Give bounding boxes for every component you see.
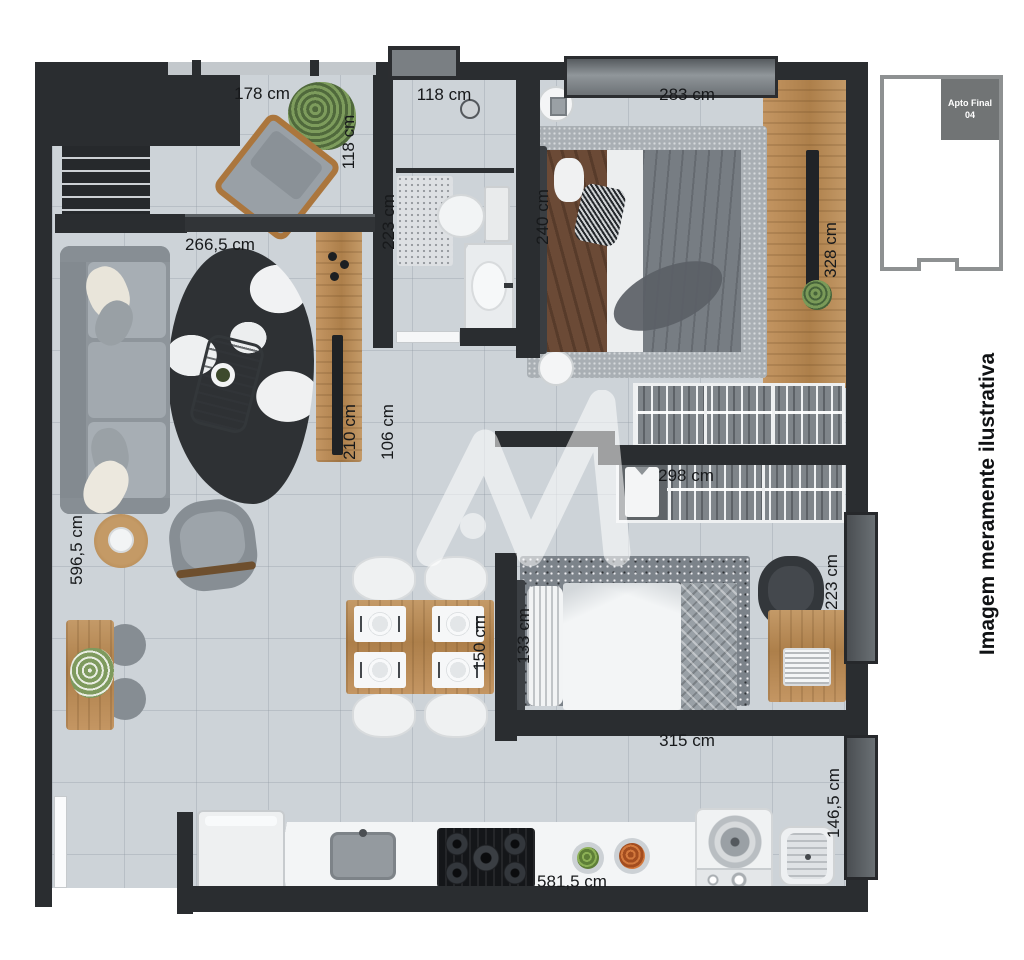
dim-living-width: 266,5 cm: [175, 235, 265, 255]
coffee-table-bowl: [211, 363, 235, 387]
dim-bedroom2-depth: 223 cm: [822, 537, 842, 627]
dim-bathroom-depth: 223 cm: [379, 177, 399, 267]
wall-entry: [55, 214, 187, 233]
dining-chair: [352, 692, 416, 738]
master-tv-panel: [806, 150, 819, 292]
dining-chair: [424, 692, 488, 738]
key-plan-notch: [917, 258, 959, 271]
service-window: [844, 735, 878, 880]
dim-dining-width: 150 cm: [470, 598, 490, 688]
place-setting: [354, 652, 406, 688]
key-plan: Apto Final 04: [880, 75, 1003, 271]
dim-master-closet: 328 cm: [821, 205, 841, 295]
washing-machine: [695, 808, 773, 892]
wall-left: [35, 62, 52, 907]
nightstand: [538, 350, 574, 386]
dim-bathroom-width: 118 cm: [399, 85, 489, 105]
decor-dot: [330, 272, 339, 281]
bedroom2-blanket: [681, 583, 737, 710]
bowl-green: [572, 842, 604, 874]
bedroom2-duvet: [563, 583, 681, 710]
m-logo-watermark-icon: [415, 390, 645, 570]
decor-dot: [340, 260, 349, 269]
dim-service-depth: 146,5 cm: [824, 758, 844, 848]
railing-post: [192, 60, 201, 76]
master-pillow: [554, 158, 584, 202]
dim-closet-width: 298 cm: [641, 466, 731, 486]
dim-kitchen-length: 581,5 cm: [527, 872, 617, 892]
shower-glass-partition: [396, 168, 514, 173]
dining-chair: [352, 556, 416, 602]
side-table: [94, 514, 148, 568]
refrigerator: [197, 810, 285, 896]
key-plan-unit-label: Apto Final 04: [941, 79, 999, 140]
kitchen-sink: [330, 832, 396, 880]
dim-hall-width: 106 cm: [378, 387, 398, 477]
toilet-tank: [484, 186, 510, 242]
master-wardrobe: [633, 383, 845, 447]
floor-plan-image: 178 cm 118 cm 118 cm 223 cm 283 cm 240 c…: [0, 0, 1024, 960]
vanity: [464, 243, 514, 331]
dim-bedroom2-width: 315 cm: [642, 731, 732, 751]
toilet: [437, 194, 485, 238]
wall-top-a: [458, 62, 568, 80]
balcony-sliding-door: [185, 214, 375, 232]
dim-bed2-width: 133 cm: [514, 591, 534, 681]
wall-top-b: [776, 62, 848, 80]
dim-master-depth: 240 cm: [533, 172, 553, 262]
decor-dot: [328, 252, 337, 261]
dim-balcony-depth: 118 cm: [339, 97, 359, 187]
bedroom2-window: [844, 512, 878, 664]
wall-kitchen-stub: [177, 812, 193, 914]
wall-bottom: [180, 886, 868, 912]
stairs: [62, 146, 150, 214]
bowl-orange: [614, 838, 650, 874]
bathroom-door: [396, 331, 460, 343]
dim-master-width: 283 cm: [642, 85, 732, 105]
bathroom-window: [388, 46, 460, 80]
laptop: [783, 648, 831, 686]
dim-living-depth: 596,5 cm: [67, 505, 87, 595]
entry-door: [54, 796, 67, 888]
dim-console-length: 210 cm: [340, 387, 360, 477]
railing-post: [310, 60, 319, 76]
cooktop: [437, 828, 535, 888]
disclaimer-text: Imagem meramente ilustrativa: [975, 344, 1001, 664]
dim-balcony-width: 178 cm: [217, 84, 307, 104]
wall-bathroom-bottom: [460, 328, 540, 346]
place-setting: [354, 606, 406, 642]
